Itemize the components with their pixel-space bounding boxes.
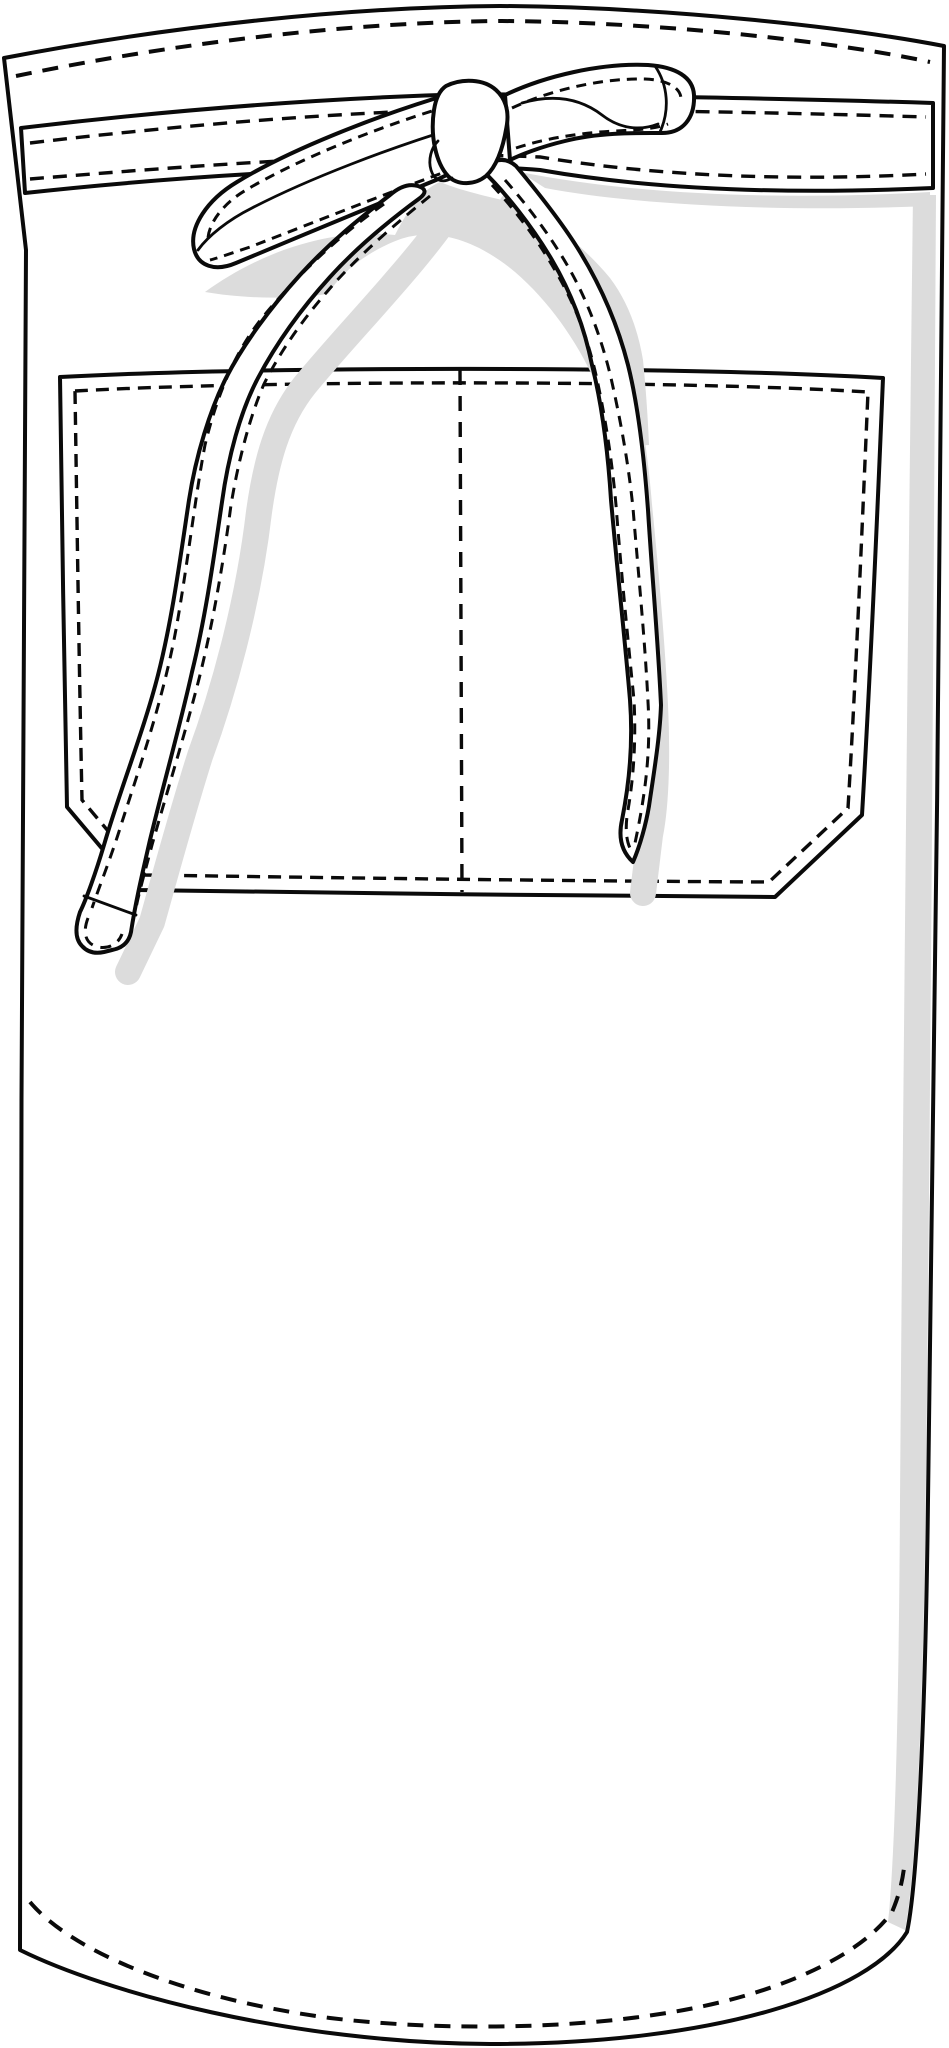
apron-technical-sketch: Technical flat line drawing of a bistro … [0, 0, 949, 2048]
apron-body [4, 6, 944, 2044]
pocket-divider-stitch [460, 370, 462, 892]
apron-body-panel [4, 6, 944, 2044]
apron-illustration: Technical flat line drawing of a bistro … [0, 0, 949, 2048]
